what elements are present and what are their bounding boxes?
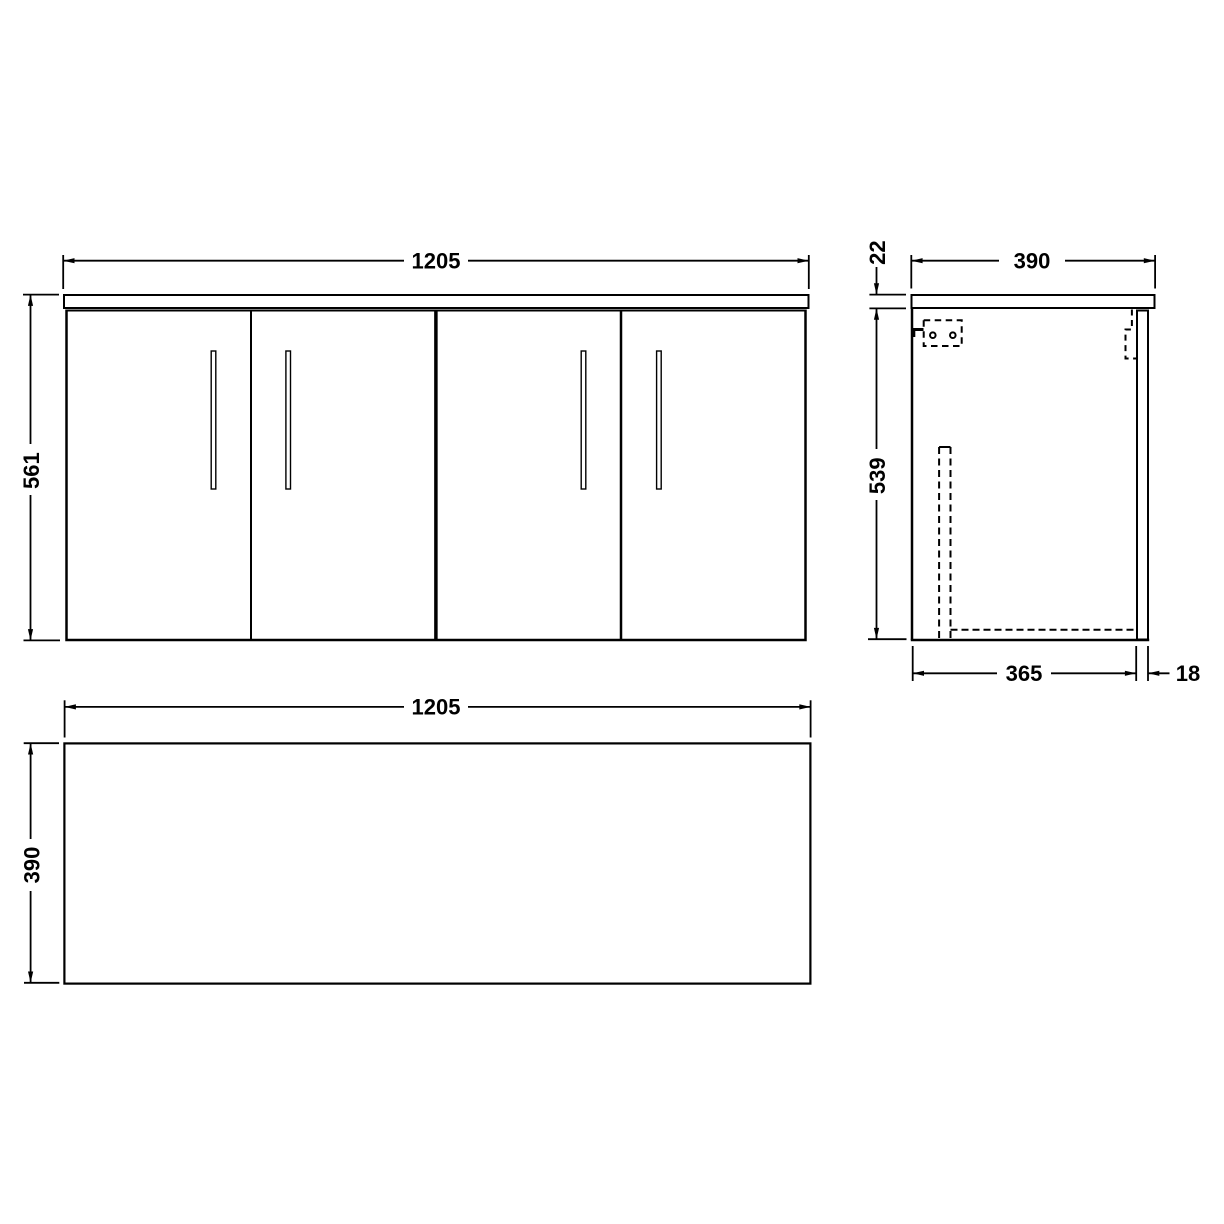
- svg-text:1205: 1205: [412, 249, 461, 274]
- svg-text:1205: 1205: [412, 695, 461, 720]
- svg-text:390: 390: [19, 847, 44, 884]
- svg-text:18: 18: [1176, 661, 1200, 686]
- svg-text:561: 561: [19, 452, 44, 489]
- svg-text:22: 22: [865, 240, 890, 264]
- svg-text:390: 390: [1014, 249, 1051, 274]
- svg-text:539: 539: [865, 457, 890, 494]
- svg-text:365: 365: [1006, 661, 1043, 686]
